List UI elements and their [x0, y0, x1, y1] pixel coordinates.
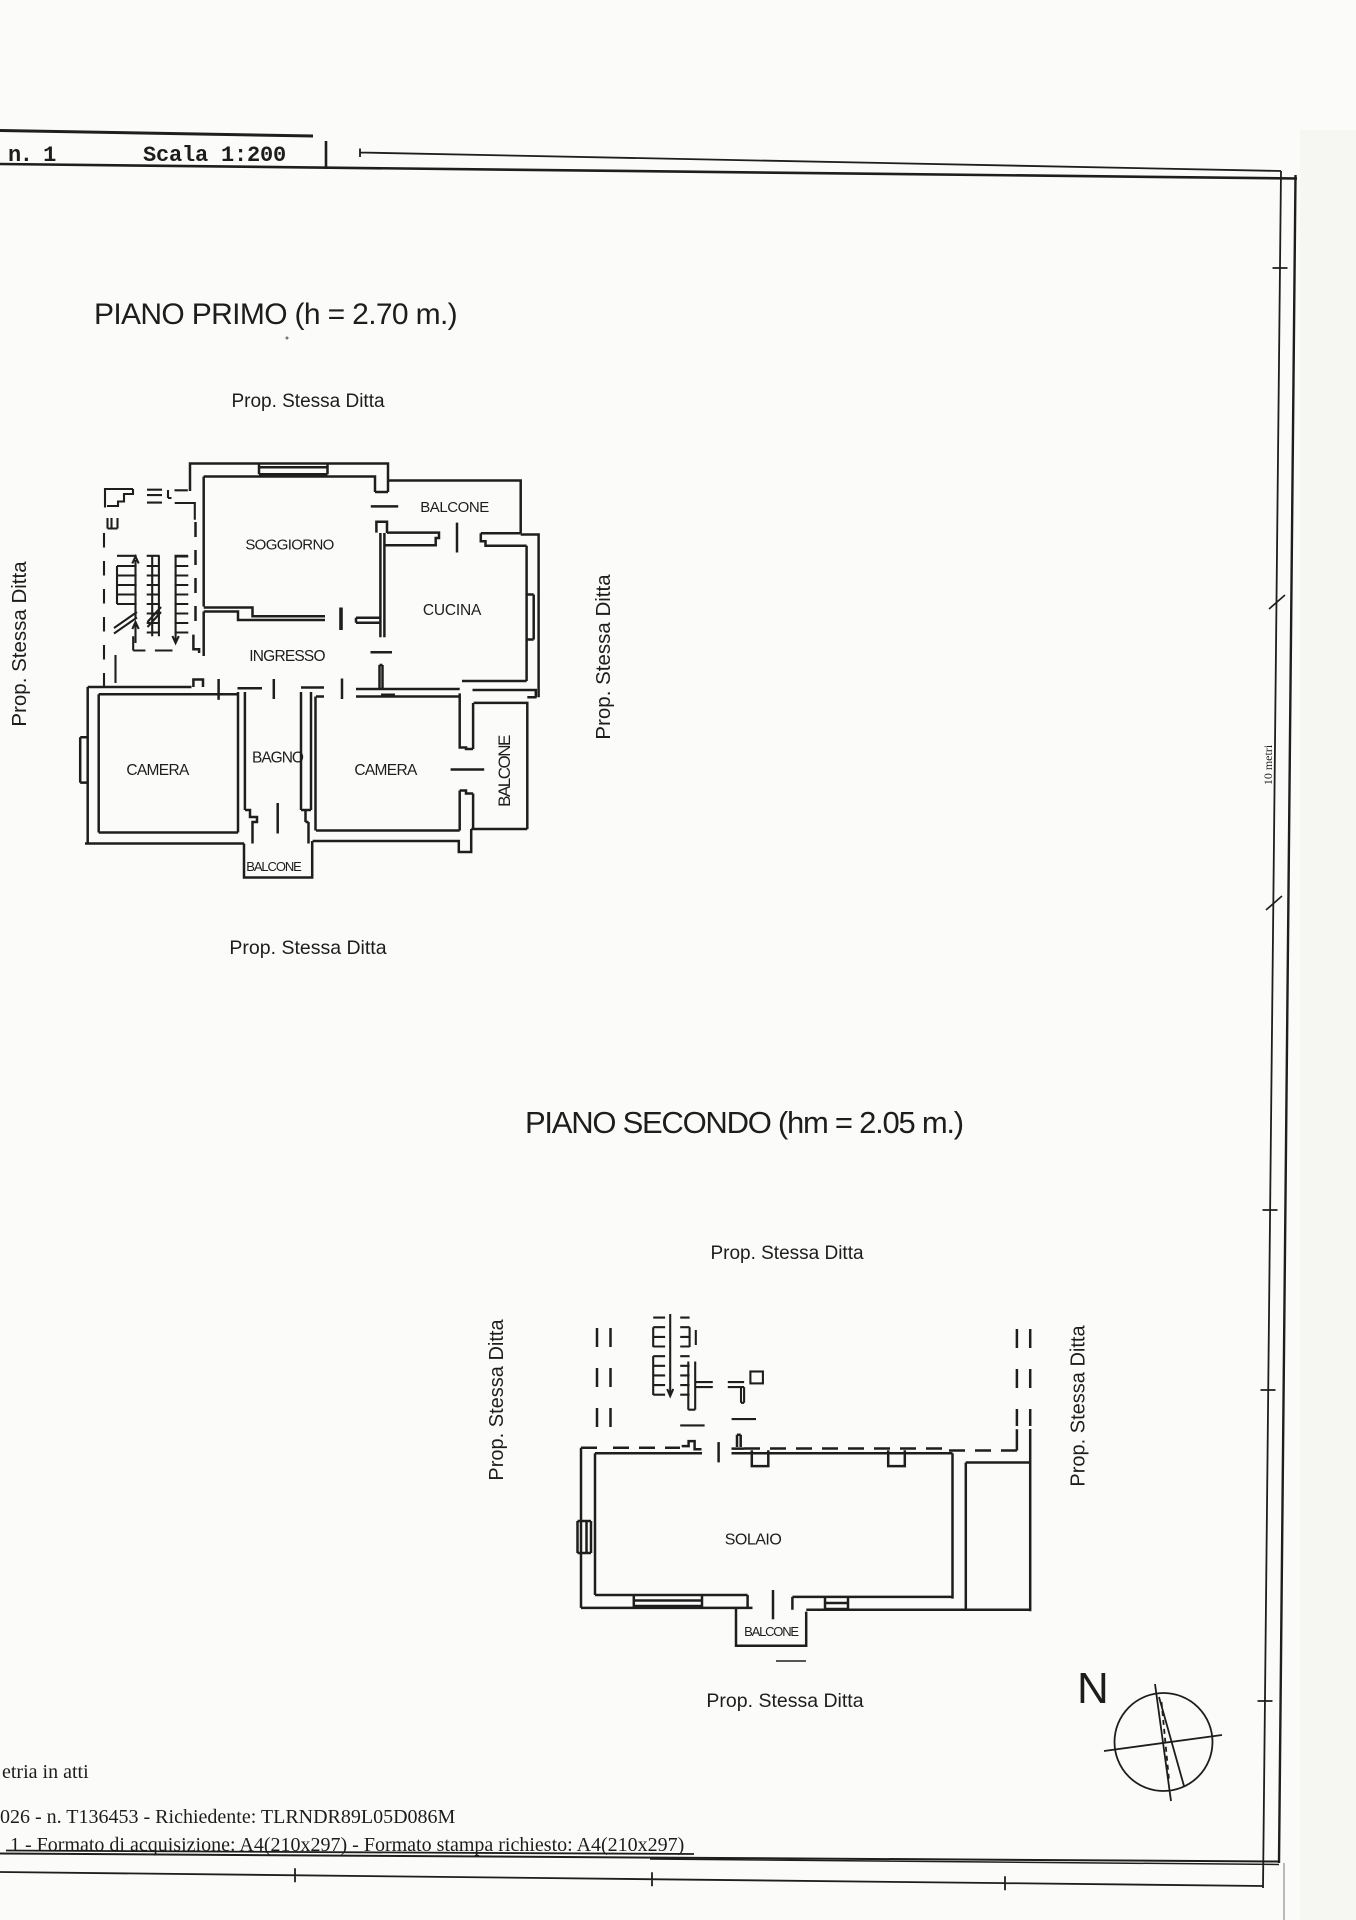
svg-text:BALCONE: BALCONE	[495, 735, 514, 807]
svg-text:etria in atti: etria in atti	[2, 1761, 89, 1783]
svg-text:SOGGIORNO: SOGGIORNO	[245, 537, 333, 554]
svg-text:Prop. Stessa Ditta: Prop. Stessa Ditta	[231, 391, 385, 412]
svg-text:026 - n. T136453 - Richiedente: 026 - n. T136453 - Richiedente: TLRNDR89…	[0, 1806, 456, 1828]
svg-text:Prop. Stessa Ditta: Prop. Stessa Ditta	[592, 574, 615, 740]
svg-text:PIANO PRIMO (h = 2.70 m.): PIANO PRIMO (h = 2.70 m.)	[94, 298, 457, 331]
svg-text:Prop. Stessa Ditta: Prop. Stessa Ditta	[8, 561, 31, 727]
svg-text:Prop. Stessa Ditta: Prop. Stessa Ditta	[706, 1690, 863, 1712]
svg-text:Prop. Stessa Ditta: Prop. Stessa Ditta	[1068, 1325, 1090, 1487]
svg-text:PIANO SECONDO (hm = 2.05 m.): PIANO SECONDO (hm = 2.05 m.)	[525, 1105, 963, 1140]
svg-text:CAMERA: CAMERA	[126, 762, 190, 779]
svg-text:N: N	[1077, 1664, 1109, 1713]
svg-text:BAGNO: BAGNO	[252, 750, 304, 767]
svg-text:Prop. Stessa Ditta: Prop. Stessa Ditta	[229, 937, 386, 959]
svg-text:Prop. Stessa Ditta: Prop. Stessa Ditta	[486, 1319, 508, 1481]
svg-text:Prop. Stessa Ditta: Prop. Stessa Ditta	[710, 1243, 864, 1264]
svg-text:INGRESSO: INGRESSO	[249, 648, 325, 665]
svg-text:BALCONE: BALCONE	[420, 499, 489, 516]
svg-text:CAMERA: CAMERA	[354, 762, 418, 779]
svg-text:BALCONE: BALCONE	[744, 1624, 799, 1639]
svg-text:BALCONE: BALCONE	[246, 859, 302, 874]
svg-text:1 - Formato di acquisizione: A: 1 - Formato di acquisizione: A4(210x297)…	[10, 1834, 684, 1856]
svg-text:CUCINA: CUCINA	[423, 602, 482, 619]
svg-text:n. 1: n. 1	[8, 143, 56, 168]
svg-text:SOLAIO: SOLAIO	[725, 1532, 782, 1549]
svg-text:10 metri: 10 metri	[1261, 744, 1275, 785]
svg-text:Scala 1:200: Scala 1:200	[143, 143, 286, 168]
